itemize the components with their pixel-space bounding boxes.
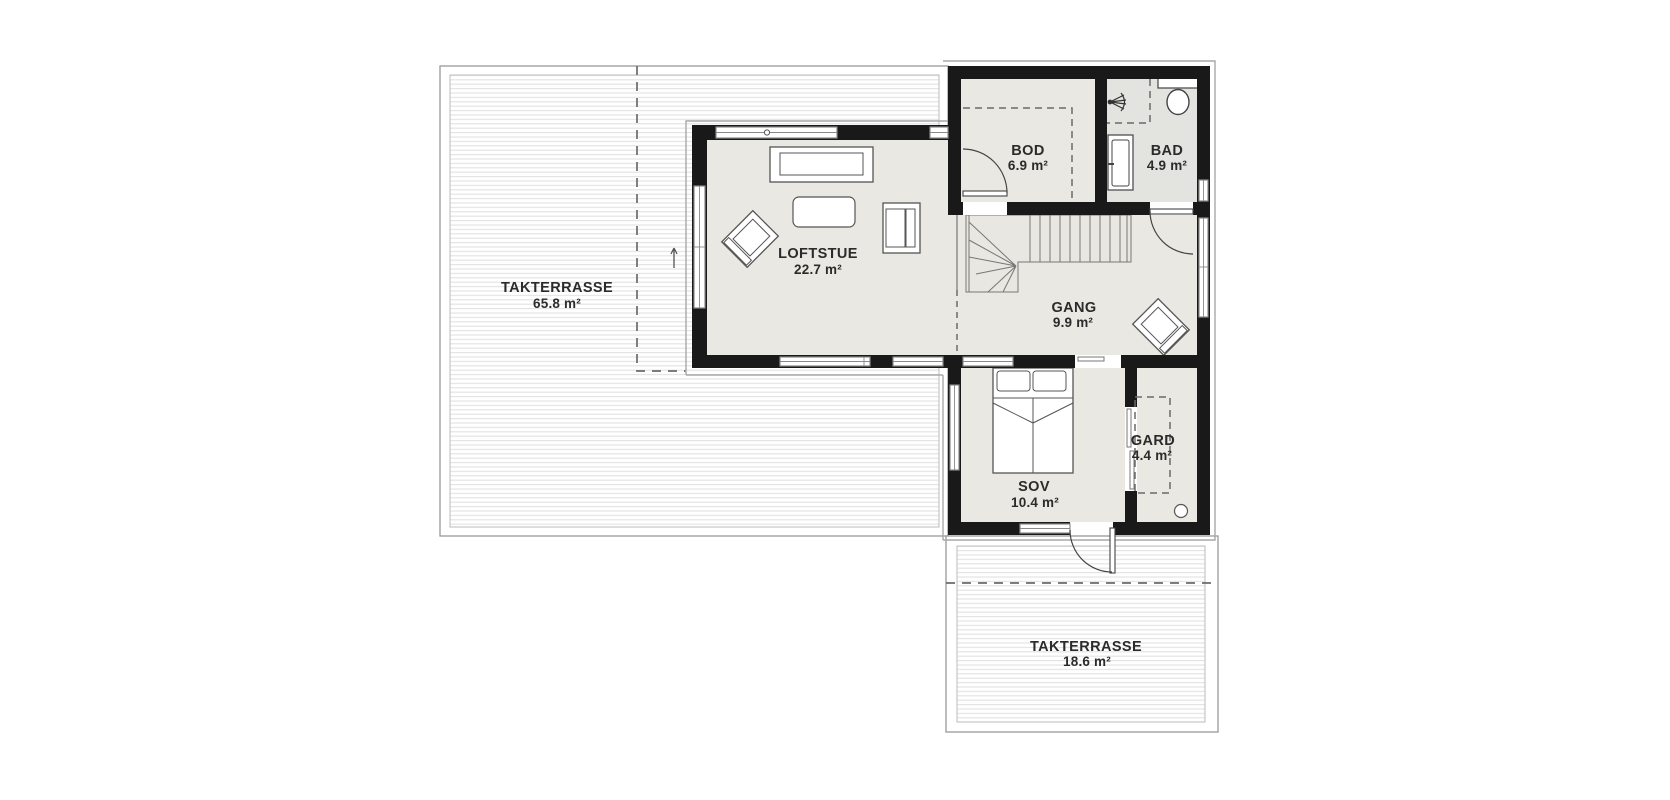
room-area-takterrasse-small: 18.6 m² xyxy=(1063,654,1111,669)
window xyxy=(780,357,870,366)
room-label-takterrasse-large: TAKTERRASSE xyxy=(501,280,613,296)
room-label-takterrasse-small: TAKTERRASSE xyxy=(1030,639,1142,655)
window xyxy=(963,357,1013,366)
room-area-loftstue: 22.7 m² xyxy=(794,262,842,277)
window xyxy=(694,186,705,308)
armchair xyxy=(883,203,920,253)
room-area-gang: 9.9 m² xyxy=(1053,315,1094,330)
room-label-bod: BOD xyxy=(1011,143,1044,159)
window xyxy=(930,127,948,138)
room-label-bad: BAD xyxy=(1151,143,1184,159)
room-label-gard: GARD xyxy=(1131,433,1175,449)
room-area-bad: 4.9 m² xyxy=(1147,158,1188,173)
room-area-gard: 4.4 m² xyxy=(1132,448,1173,463)
pillow xyxy=(997,371,1030,391)
window xyxy=(950,385,959,470)
sliding-door xyxy=(1078,357,1104,361)
terrace-small xyxy=(946,536,1218,732)
floor-drain xyxy=(1175,505,1188,518)
room-label-loftstue: LOFTSTUE xyxy=(778,246,858,262)
floor-plan-page: TAKTERRASSE 65.8 m² LOFTSTUE 22.7 m² BOD… xyxy=(0,0,1670,800)
window xyxy=(1199,180,1208,201)
room-label-sov: SOV xyxy=(1018,479,1050,495)
window xyxy=(893,357,943,366)
room-area-takterrasse-large: 65.8 m² xyxy=(533,296,581,311)
floor-plan-drawing: TAKTERRASSE 65.8 m² LOFTSTUE 22.7 m² BOD… xyxy=(0,0,1670,800)
room-area-sov: 10.4 m² xyxy=(1011,495,1059,510)
washbasin xyxy=(1108,135,1133,190)
bod-floor xyxy=(961,79,1095,202)
window xyxy=(1020,524,1070,533)
sofa xyxy=(770,147,873,182)
double-bed xyxy=(993,368,1073,473)
pillow xyxy=(1033,371,1066,391)
room-area-bod: 6.9 m² xyxy=(1008,158,1049,173)
room-label-gang: GANG xyxy=(1051,300,1096,316)
window xyxy=(1199,218,1208,317)
window xyxy=(716,127,837,138)
coffee-table xyxy=(793,197,855,227)
